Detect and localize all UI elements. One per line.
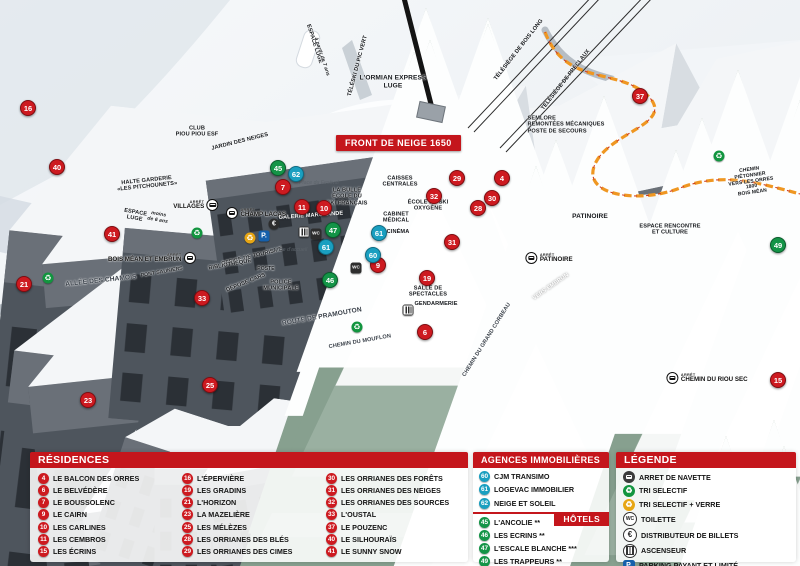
recycle-glass-icon bbox=[245, 233, 256, 244]
map-marker: 10 bbox=[316, 200, 332, 216]
residence-label: LES ÉCRINS bbox=[53, 547, 96, 556]
hotel-number-badge: 46 bbox=[479, 530, 490, 541]
agence-label: LOGEVAC IMMOBILIER bbox=[494, 485, 574, 494]
agence-number-badge: 62 bbox=[479, 498, 490, 509]
residence-item: 23 LA MAZELIÈRE bbox=[182, 509, 316, 521]
hotel-number-badge: 45 bbox=[479, 517, 490, 528]
map-marker: 45 bbox=[270, 160, 286, 176]
residence-label: LE BELVÉDÈRE bbox=[53, 486, 108, 495]
map-marker: 61 bbox=[371, 225, 387, 241]
atm-icon bbox=[269, 219, 280, 230]
map-marker: 60 bbox=[365, 247, 381, 263]
legende-list: ARRET DE NAVETTE TRI SELECTIF TRI SELECT… bbox=[616, 468, 796, 566]
bus-stop-name: BOIS MÉAN ET EMBRUN bbox=[108, 257, 182, 264]
residence-number-badge: 23 bbox=[182, 509, 193, 520]
map-label: PATINOIRE bbox=[572, 213, 608, 221]
parking-icon bbox=[623, 560, 635, 566]
agence-number-badge: 61 bbox=[479, 484, 490, 495]
elevator-icon bbox=[403, 305, 414, 316]
residence-item: 28 LES ORRIANES DES BLÉS bbox=[182, 533, 316, 545]
map-marker: 30 bbox=[484, 190, 500, 206]
residence-number-badge: 25 bbox=[182, 522, 193, 533]
bus-stop: ARRÊT CHAMP LACAS bbox=[226, 207, 286, 219]
agence-item: 61 LOGEVAC IMMOBILIER bbox=[479, 484, 603, 495]
legende-item: PARKING PAYANT ET LIMITÉ bbox=[623, 560, 789, 566]
residence-item: 41 LE SUNNY SNOW bbox=[326, 546, 460, 558]
residence-item: 11 LES CEMBROS bbox=[38, 533, 172, 545]
residence-label: LES CARLINES bbox=[53, 523, 106, 532]
map-label: CAISSES CENTRALES bbox=[382, 176, 417, 189]
residence-item: 7 LE BOUSSOLENC bbox=[38, 497, 172, 509]
residence-item: 30 LES ORRIANES DES FORÊTS bbox=[326, 472, 460, 484]
residence-number-badge: 41 bbox=[326, 546, 337, 557]
residence-item: 32 LES ORRIANES DES SOURCES bbox=[326, 497, 460, 509]
legende-label: TOILETTE bbox=[641, 515, 676, 524]
map-label: SEMLORE REMONTÉES MÉCANIQUES POSTE DE SE… bbox=[528, 115, 605, 134]
hotels-section: HÔTELS 45 L'ANCOLIE ** 46 LES ECRINS ** … bbox=[473, 512, 609, 566]
residence-number-badge: 33 bbox=[326, 509, 337, 520]
map-marker: 61 bbox=[318, 239, 334, 255]
bus-stop-name: CHEMIN DU RIOU SEC bbox=[681, 377, 748, 384]
map-marker: 21 bbox=[16, 276, 32, 292]
residence-number-badge: 30 bbox=[326, 473, 337, 484]
hotel-number-badge: 47 bbox=[479, 543, 490, 554]
residence-label: L'OUSTAL bbox=[341, 510, 376, 519]
bus-icon bbox=[207, 199, 219, 211]
map-marker: 41 bbox=[104, 226, 120, 242]
map-marker: 62 bbox=[288, 166, 304, 182]
residence-item: 4 LE BALCON DES ORRES bbox=[38, 472, 172, 484]
residence-item: 37 LE POUZENC bbox=[326, 521, 460, 533]
residence-number-badge: 15 bbox=[38, 546, 49, 557]
map-marker: 23 bbox=[80, 392, 96, 408]
legende-label: TRI SELECTIF bbox=[639, 486, 687, 495]
residence-label: LE CAIRN bbox=[53, 510, 87, 519]
residence-label: LES ORRIANES DES BLÉS bbox=[197, 535, 289, 544]
residence-item: 31 LES ORRIANES DES NEIGES bbox=[326, 484, 460, 496]
map-marker: 37 bbox=[632, 88, 648, 104]
map-label: Place d'accueil bbox=[273, 248, 308, 254]
map-marker: 11 bbox=[294, 199, 310, 215]
residence-item: 10 LES CARLINES bbox=[38, 521, 172, 533]
map-marker: 6 bbox=[417, 324, 433, 340]
map-marker: 19 bbox=[419, 270, 435, 286]
map-label: POSTE bbox=[257, 267, 274, 273]
bus-icon bbox=[226, 207, 238, 219]
legende-item: TOILETTE bbox=[623, 512, 789, 526]
residence-number-badge: 11 bbox=[38, 534, 49, 545]
legende-item: DISTRIBUTEUR DE BILLETS bbox=[623, 528, 789, 542]
toilet-icon bbox=[351, 263, 362, 274]
bus-stop-name: CHAMP LACAS bbox=[240, 212, 286, 219]
legende-item: TRI SELECTIF bbox=[623, 485, 789, 497]
agences-panel: AGENCES IMMOBILIÈRES 60 CJM TRANSIMO 61 … bbox=[473, 452, 609, 562]
residence-label: LES ORRIANES DES FORÊTS bbox=[341, 474, 443, 483]
map-marker: 40 bbox=[49, 159, 65, 175]
bus-stop: ARRÊT PATINOIRE bbox=[525, 252, 572, 264]
map-marker: 16 bbox=[20, 100, 36, 116]
residence-number-badge: 10 bbox=[38, 522, 49, 533]
residence-item: 19 LES GRADINS bbox=[182, 484, 316, 496]
residence-item: 40 LE SILHOURAÏS bbox=[326, 533, 460, 545]
elevator-icon bbox=[299, 227, 310, 238]
map-marker: 33 bbox=[194, 290, 210, 306]
hotels-header: HÔTELS bbox=[554, 513, 609, 526]
map-marker: 25 bbox=[202, 377, 218, 393]
legende-label: DISTRIBUTEUR DE BILLETS bbox=[641, 531, 738, 540]
legende-header: LÉGENDE bbox=[616, 452, 796, 468]
hotel-item: 49 LES TRAPPEURS ** bbox=[479, 556, 603, 566]
map-marker: 29 bbox=[449, 170, 465, 186]
map-marker: 15 bbox=[770, 372, 786, 388]
map-label: POLICE MUNICIPALE bbox=[263, 280, 298, 293]
residence-number-badge: 16 bbox=[182, 473, 193, 484]
residence-label: LE POUZENC bbox=[341, 523, 387, 532]
hotel-item: 47 L'ESCALE BLANCHE *** bbox=[479, 543, 603, 554]
legende-panel: LÉGENDE ARRET DE NAVETTE TRI SELECTIF TR… bbox=[616, 452, 796, 562]
atm-icon bbox=[623, 528, 637, 542]
bus-stop-name: PATINOIRE bbox=[540, 257, 573, 264]
residence-label: LES ORRIANES DES CIMES bbox=[197, 547, 292, 556]
map-marker: 49 bbox=[770, 237, 786, 253]
map-label: ESPACE RENCONTRE ET CULTURE bbox=[639, 224, 700, 237]
residence-number-badge: 6 bbox=[38, 485, 49, 496]
bus-stop: ARRÊT VILLAGES bbox=[173, 199, 218, 211]
hotel-label: L'ANCOLIE ** bbox=[494, 518, 540, 527]
residence-label: LE SILHOURAÏS bbox=[341, 535, 397, 544]
agence-label: CJM TRANSIMO bbox=[494, 472, 550, 481]
residences-list: 4 LE BALCON DES ORRES 6 LE BELVÉDÈRE 7 L… bbox=[30, 468, 468, 562]
bus-icon bbox=[666, 372, 678, 384]
map-marker: 46 bbox=[322, 272, 338, 288]
residence-number-badge: 29 bbox=[182, 546, 193, 557]
residence-number-badge: 32 bbox=[326, 497, 337, 508]
map-marker: 32 bbox=[426, 188, 442, 204]
residence-item: 9 LE CAIRN bbox=[38, 509, 172, 521]
legende-item: ASCENSEUR bbox=[623, 544, 789, 558]
recycle-glass-icon bbox=[623, 499, 635, 511]
ski-village-map: FRONT DE NEIGE 1650 ESPACE LUGE à partir… bbox=[0, 0, 800, 566]
residence-item: 15 LES ÉCRINS bbox=[38, 546, 172, 558]
map-marker: 28 bbox=[470, 200, 486, 216]
residence-label: LES GRADINS bbox=[197, 486, 246, 495]
hotel-label: LES ECRINS ** bbox=[494, 531, 545, 540]
map-label: GENDARMERIE bbox=[414, 301, 457, 307]
residence-number-badge: 40 bbox=[326, 534, 337, 545]
residence-label: L'HORIZON bbox=[197, 498, 236, 507]
legende-item: ARRET DE NAVETTE bbox=[623, 471, 789, 483]
legende-label: ASCENSEUR bbox=[641, 546, 686, 555]
legende-label: ARRET DE NAVETTE bbox=[639, 473, 711, 482]
residence-number-badge: 37 bbox=[326, 522, 337, 533]
residence-label: LES CEMBROS bbox=[53, 535, 106, 544]
residence-number-badge: 21 bbox=[182, 497, 193, 508]
agence-item: 60 CJM TRANSIMO bbox=[479, 471, 603, 482]
residence-item: 6 LE BELVÉDÈRE bbox=[38, 484, 172, 496]
map-label: CINÉMA bbox=[387, 229, 410, 235]
residence-label: LES ORRIANES DES NEIGES bbox=[341, 486, 441, 495]
agence-item: 62 NEIGE ET SOLEIL bbox=[479, 498, 603, 509]
map-label: SALLE DE SPECTACLES bbox=[409, 286, 447, 299]
bus-icon bbox=[184, 252, 196, 264]
agence-label: NEIGE ET SOLEIL bbox=[494, 499, 556, 508]
elevator-icon bbox=[623, 544, 637, 558]
legende-label: TRI SELECTIF + VERRE bbox=[639, 500, 720, 509]
agence-number-badge: 60 bbox=[479, 471, 490, 482]
map-label: Place du Festival bbox=[299, 181, 339, 187]
residence-item: 33 L'OUSTAL bbox=[326, 509, 460, 521]
legende-item: TRI SELECTIF + VERRE bbox=[623, 499, 789, 511]
residences-panel: RÉSIDENCES 4 LE BALCON DES ORRES 6 LE BE… bbox=[30, 452, 468, 562]
recycle-icon bbox=[352, 322, 363, 333]
bus-icon bbox=[525, 252, 537, 264]
residence-number-badge: 7 bbox=[38, 497, 49, 508]
toilet-icon bbox=[311, 229, 322, 240]
recycle-icon bbox=[714, 151, 725, 162]
hotel-number-badge: 49 bbox=[479, 556, 490, 566]
agences-list: 60 CJM TRANSIMO 61 LOGEVAC IMMOBILIER 62… bbox=[473, 468, 609, 509]
legende-label: PARKING PAYANT ET LIMITÉ bbox=[639, 561, 738, 566]
residence-item: 21 L'HORIZON bbox=[182, 497, 316, 509]
residence-number-badge: 4 bbox=[38, 473, 49, 484]
hotel-label: LES TRAPPEURS ** bbox=[494, 557, 562, 566]
hotel-item: 46 LES ECRINS ** bbox=[479, 530, 603, 541]
residence-label: LE BALCON DES ORRES bbox=[53, 474, 139, 483]
bus-stop: ARRÊT BOIS MÉAN ET EMBRUN bbox=[108, 252, 196, 264]
residence-label: LE SUNNY SNOW bbox=[341, 547, 402, 556]
bus-stop: ARRÊT CHEMIN DU RIOU SEC bbox=[666, 372, 747, 384]
map-marker: 31 bbox=[444, 234, 460, 250]
residence-item: 16 L'ÉPERVIÈRE bbox=[182, 472, 316, 484]
map-label: CABINET MÉDICAL bbox=[383, 212, 409, 225]
residence-item: 25 LES MÉLÈZES bbox=[182, 521, 316, 533]
residence-label: L'ÉPERVIÈRE bbox=[197, 474, 244, 483]
recycle-icon bbox=[192, 228, 203, 239]
residence-number-badge: 28 bbox=[182, 534, 193, 545]
residence-label: LA MAZELIÈRE bbox=[197, 510, 250, 519]
map-label: CLUB PIOU PIOU ESF bbox=[176, 126, 219, 139]
map-label: L'ORMIAN EXPRESS LUGE bbox=[360, 74, 427, 89]
map-label: LA BULLE ÉCOLE DU SKI FRANÇAIS bbox=[327, 187, 368, 206]
recycle-icon bbox=[43, 273, 54, 284]
residence-item: 29 LES ORRIANES DES CIMES bbox=[182, 546, 316, 558]
residence-label: LES ORRIANES DES SOURCES bbox=[341, 498, 449, 507]
front-de-neige-banner: FRONT DE NEIGE 1650 bbox=[336, 135, 461, 151]
toilet-icon bbox=[623, 512, 637, 526]
residence-number-badge: 9 bbox=[38, 509, 49, 520]
residence-number-badge: 31 bbox=[326, 485, 337, 496]
hotel-label: L'ESCALE BLANCHE *** bbox=[494, 544, 577, 553]
map-marker: 47 bbox=[325, 222, 341, 238]
map-marker: 7 bbox=[275, 179, 291, 195]
agences-header: AGENCES IMMOBILIÈRES bbox=[473, 452, 609, 468]
bus-icon bbox=[623, 471, 635, 483]
parking-icon bbox=[259, 231, 270, 242]
residence-number-badge: 19 bbox=[182, 485, 193, 496]
map-marker: 4 bbox=[494, 170, 510, 186]
residence-label: LES MÉLÈZES bbox=[197, 523, 247, 532]
recycle-icon bbox=[623, 485, 635, 497]
residence-label: LE BOUSSOLENC bbox=[53, 498, 115, 507]
bus-stop-name: VILLAGES bbox=[173, 204, 204, 211]
residences-header: RÉSIDENCES bbox=[30, 452, 468, 468]
